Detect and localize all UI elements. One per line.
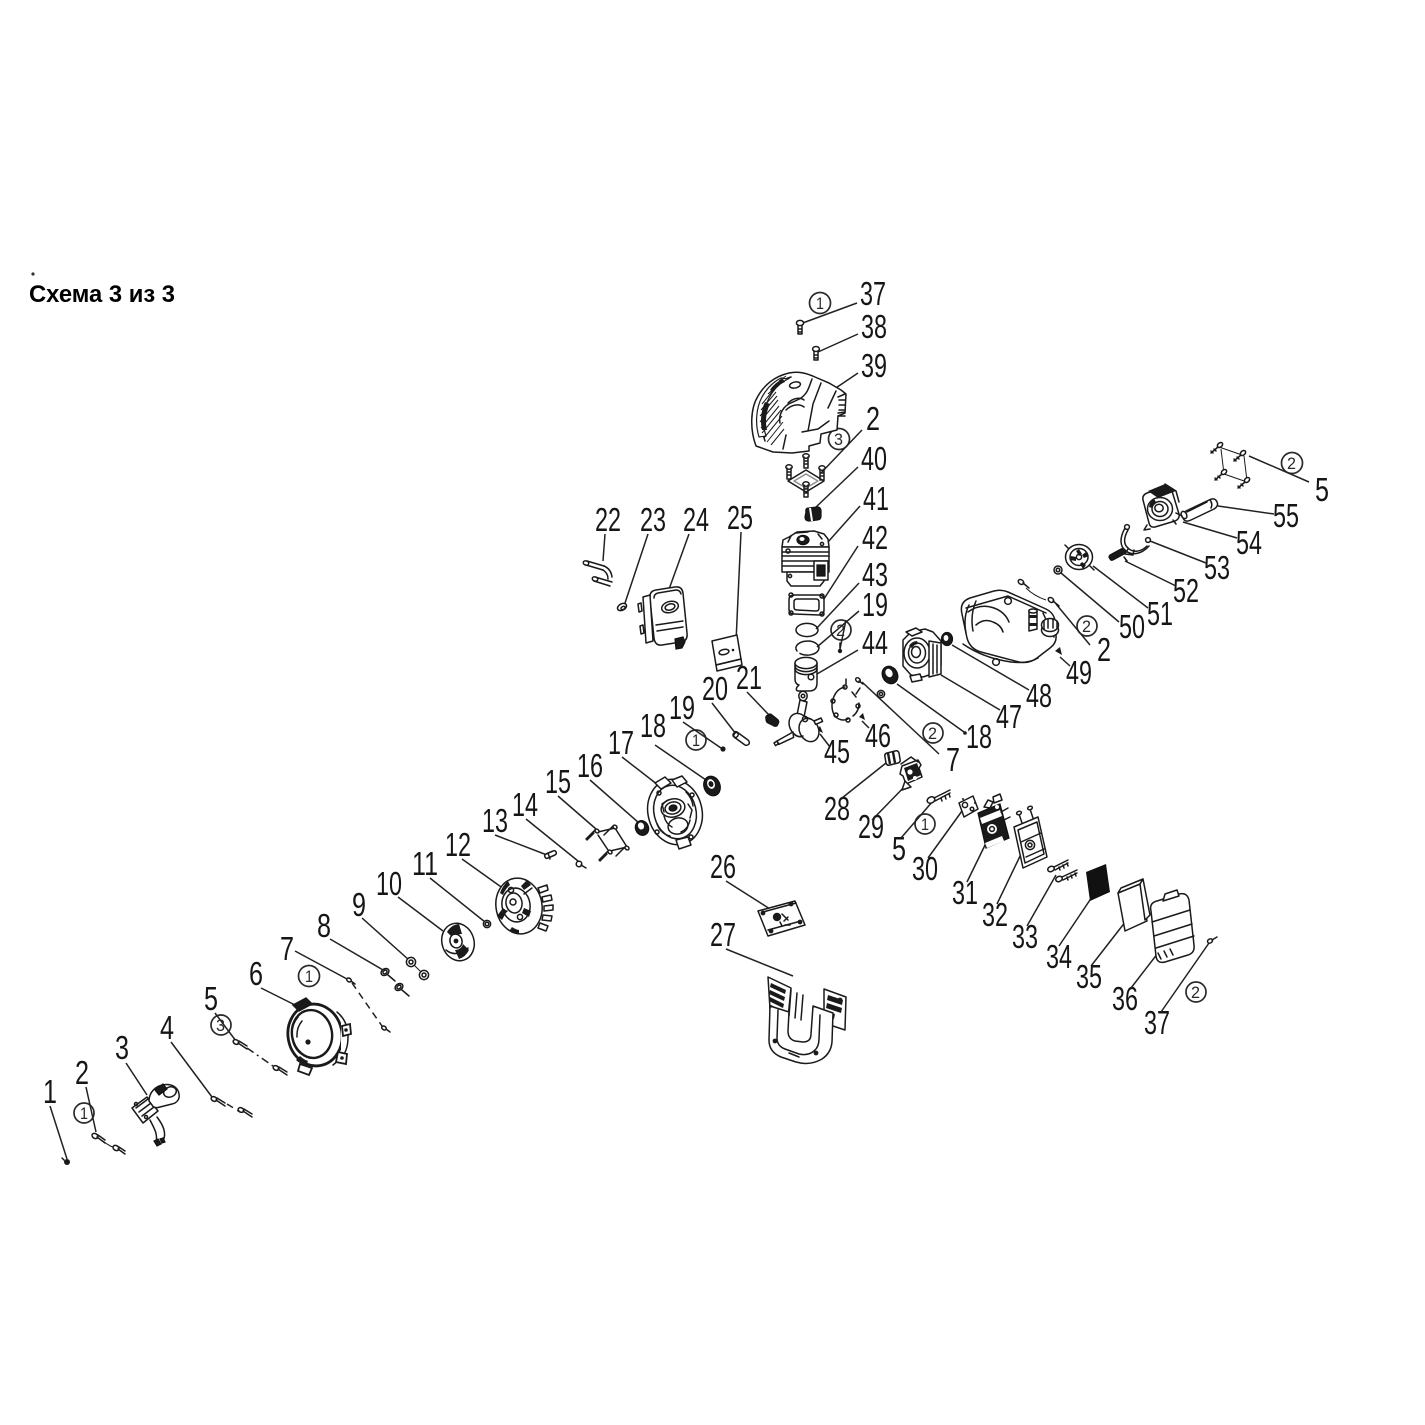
- svg-text:2: 2: [866, 400, 880, 437]
- svg-text:3: 3: [115, 1029, 129, 1066]
- svg-text:31: 31: [952, 874, 978, 911]
- svg-text:52: 52: [1173, 572, 1199, 609]
- svg-text:44: 44: [862, 624, 888, 661]
- svg-text:22: 22: [595, 501, 621, 538]
- svg-text:40: 40: [861, 440, 887, 477]
- svg-text:1: 1: [921, 815, 929, 834]
- svg-text:39: 39: [861, 347, 887, 384]
- svg-text:49: 49: [1066, 654, 1092, 691]
- svg-text:7: 7: [280, 930, 294, 967]
- svg-text:12: 12: [445, 826, 471, 863]
- svg-text:18: 18: [640, 707, 666, 744]
- svg-text:7: 7: [946, 741, 960, 778]
- svg-text:32: 32: [982, 896, 1008, 933]
- svg-text:10: 10: [376, 865, 402, 902]
- svg-text:25: 25: [727, 499, 753, 536]
- svg-text:8: 8: [317, 907, 331, 944]
- svg-text:33: 33: [1012, 918, 1038, 955]
- svg-text:1: 1: [80, 1104, 88, 1123]
- svg-text:21: 21: [736, 659, 762, 696]
- svg-text:2: 2: [928, 724, 937, 743]
- svg-text:4: 4: [160, 1009, 174, 1046]
- svg-text:5: 5: [1315, 471, 1329, 508]
- svg-text:23: 23: [640, 501, 666, 538]
- svg-text:2: 2: [75, 1054, 89, 1091]
- svg-text:48: 48: [1026, 677, 1052, 714]
- svg-text:6: 6: [249, 955, 263, 992]
- svg-text:19: 19: [669, 689, 695, 726]
- svg-text:18: 18: [966, 718, 992, 755]
- svg-text:2: 2: [1287, 454, 1296, 473]
- svg-text:54: 54: [1236, 524, 1262, 561]
- svg-text:1: 1: [305, 967, 313, 986]
- svg-text:29: 29: [858, 808, 884, 845]
- svg-text:30: 30: [912, 850, 938, 887]
- svg-text:38: 38: [861, 308, 887, 345]
- svg-text:55: 55: [1273, 497, 1299, 534]
- svg-text:42: 42: [862, 519, 888, 556]
- svg-text:50: 50: [1119, 608, 1145, 645]
- svg-text:17: 17: [608, 724, 634, 761]
- svg-text:11: 11: [412, 845, 438, 882]
- svg-text:34: 34: [1046, 938, 1072, 975]
- svg-text:2: 2: [1082, 617, 1091, 636]
- svg-text:1: 1: [43, 1073, 57, 1110]
- svg-text:51: 51: [1147, 595, 1173, 632]
- svg-text:45: 45: [824, 733, 850, 770]
- svg-text:1: 1: [816, 294, 824, 313]
- svg-text:9: 9: [352, 886, 366, 923]
- svg-text:53: 53: [1204, 549, 1230, 586]
- svg-text:37: 37: [860, 275, 886, 312]
- svg-text:Схема 3 из 3: Схема 3 из 3: [29, 281, 175, 308]
- svg-text:15: 15: [545, 763, 571, 800]
- svg-text:16: 16: [577, 747, 603, 784]
- svg-text:46: 46: [865, 717, 891, 754]
- svg-text:26: 26: [710, 848, 736, 885]
- svg-text:41: 41: [863, 480, 889, 517]
- svg-text:1: 1: [692, 731, 700, 750]
- svg-text:2: 2: [1097, 631, 1111, 668]
- svg-text:27: 27: [710, 916, 736, 953]
- svg-text:37: 37: [1144, 1004, 1170, 1041]
- svg-text:13: 13: [482, 802, 508, 839]
- svg-text:14: 14: [512, 786, 538, 823]
- svg-text:24: 24: [683, 501, 709, 538]
- svg-text:3: 3: [834, 430, 843, 449]
- svg-text:36: 36: [1112, 980, 1138, 1017]
- svg-text:19: 19: [862, 586, 888, 623]
- svg-text:35: 35: [1076, 958, 1102, 995]
- svg-text:20: 20: [702, 670, 728, 707]
- svg-text:5: 5: [204, 980, 218, 1017]
- svg-text:2: 2: [1191, 983, 1200, 1002]
- svg-text:47: 47: [996, 698, 1022, 735]
